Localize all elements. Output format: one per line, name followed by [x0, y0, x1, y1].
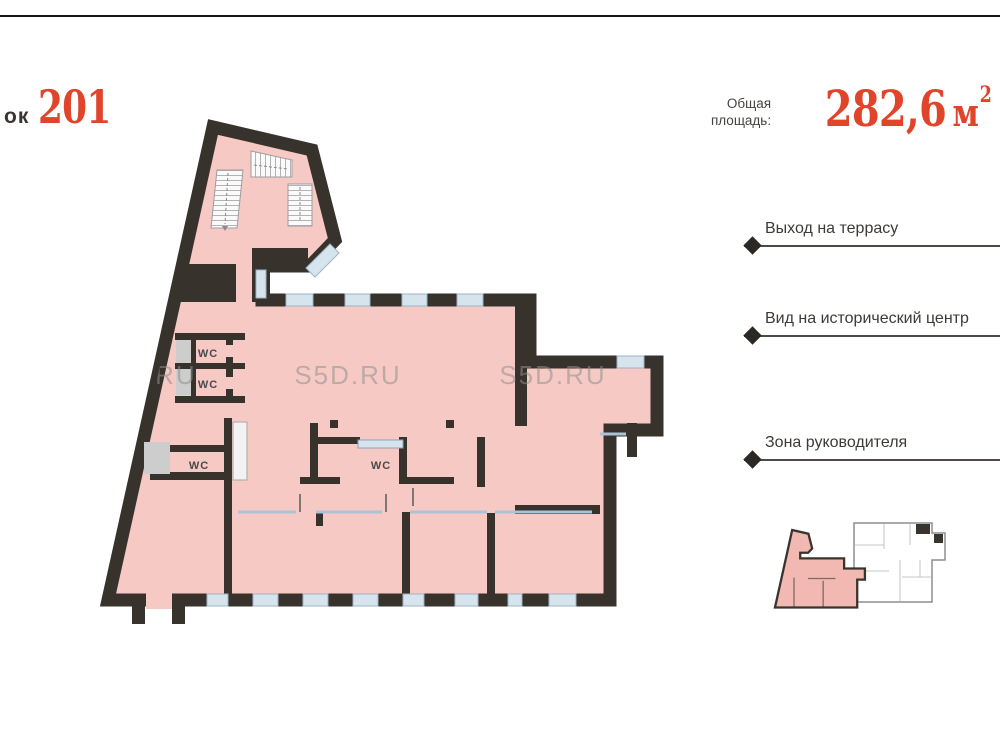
wc-label: WC	[371, 460, 391, 472]
floor-plan: WC WC WC WC S5D.RU S5D.RU S5D.RU	[80, 110, 680, 630]
feature-underline	[744, 459, 1000, 461]
wc-glazed-front	[358, 440, 403, 448]
diamond-bullet-icon	[743, 326, 761, 344]
floor-overview-minimap	[770, 513, 955, 613]
watermark-text: S5D.RU	[499, 360, 606, 390]
wc-label: WC	[198, 348, 218, 360]
diamond-bullet-icon	[743, 450, 761, 468]
block-label-fragment: ок	[4, 105, 29, 129]
area-unit: м	[953, 90, 979, 135]
watermarks: S5D.RU S5D.RU S5D.RU	[89, 360, 606, 390]
diamond-bullet-icon	[743, 236, 761, 254]
watermark-text: S5D.RU	[294, 360, 401, 390]
minimap-current-block	[775, 530, 865, 607]
feature-item-manager-zone: Зона руководителя	[744, 432, 1000, 461]
feature-label: Вид на исторический центр	[765, 308, 980, 329]
feature-underline	[744, 335, 1000, 337]
feature-item-terrace: Выход на террасу	[744, 218, 1000, 247]
minimap-building-rest	[854, 523, 945, 602]
watermark-text: S5D.RU	[89, 360, 196, 390]
total-area-value: 282,6м2	[825, 84, 992, 134]
feature-underline	[744, 245, 1000, 247]
wc-label: WC	[189, 460, 209, 472]
staircase-right	[288, 184, 312, 226]
feature-label: Зона руководителя	[765, 432, 980, 453]
kitchenette	[233, 422, 247, 480]
feature-item-view: Вид на исторический центр	[744, 308, 1000, 337]
total-area-label: Общая площадь:	[697, 84, 771, 130]
total-area: Общая площадь: 282,6м2	[697, 84, 992, 134]
area-unit-exponent: 2	[980, 82, 992, 108]
area-number: 282,6	[825, 79, 946, 138]
top-divider-line	[0, 15, 1000, 17]
feature-label: Выход на террасу	[765, 218, 980, 239]
wc-label: WC	[198, 379, 218, 391]
